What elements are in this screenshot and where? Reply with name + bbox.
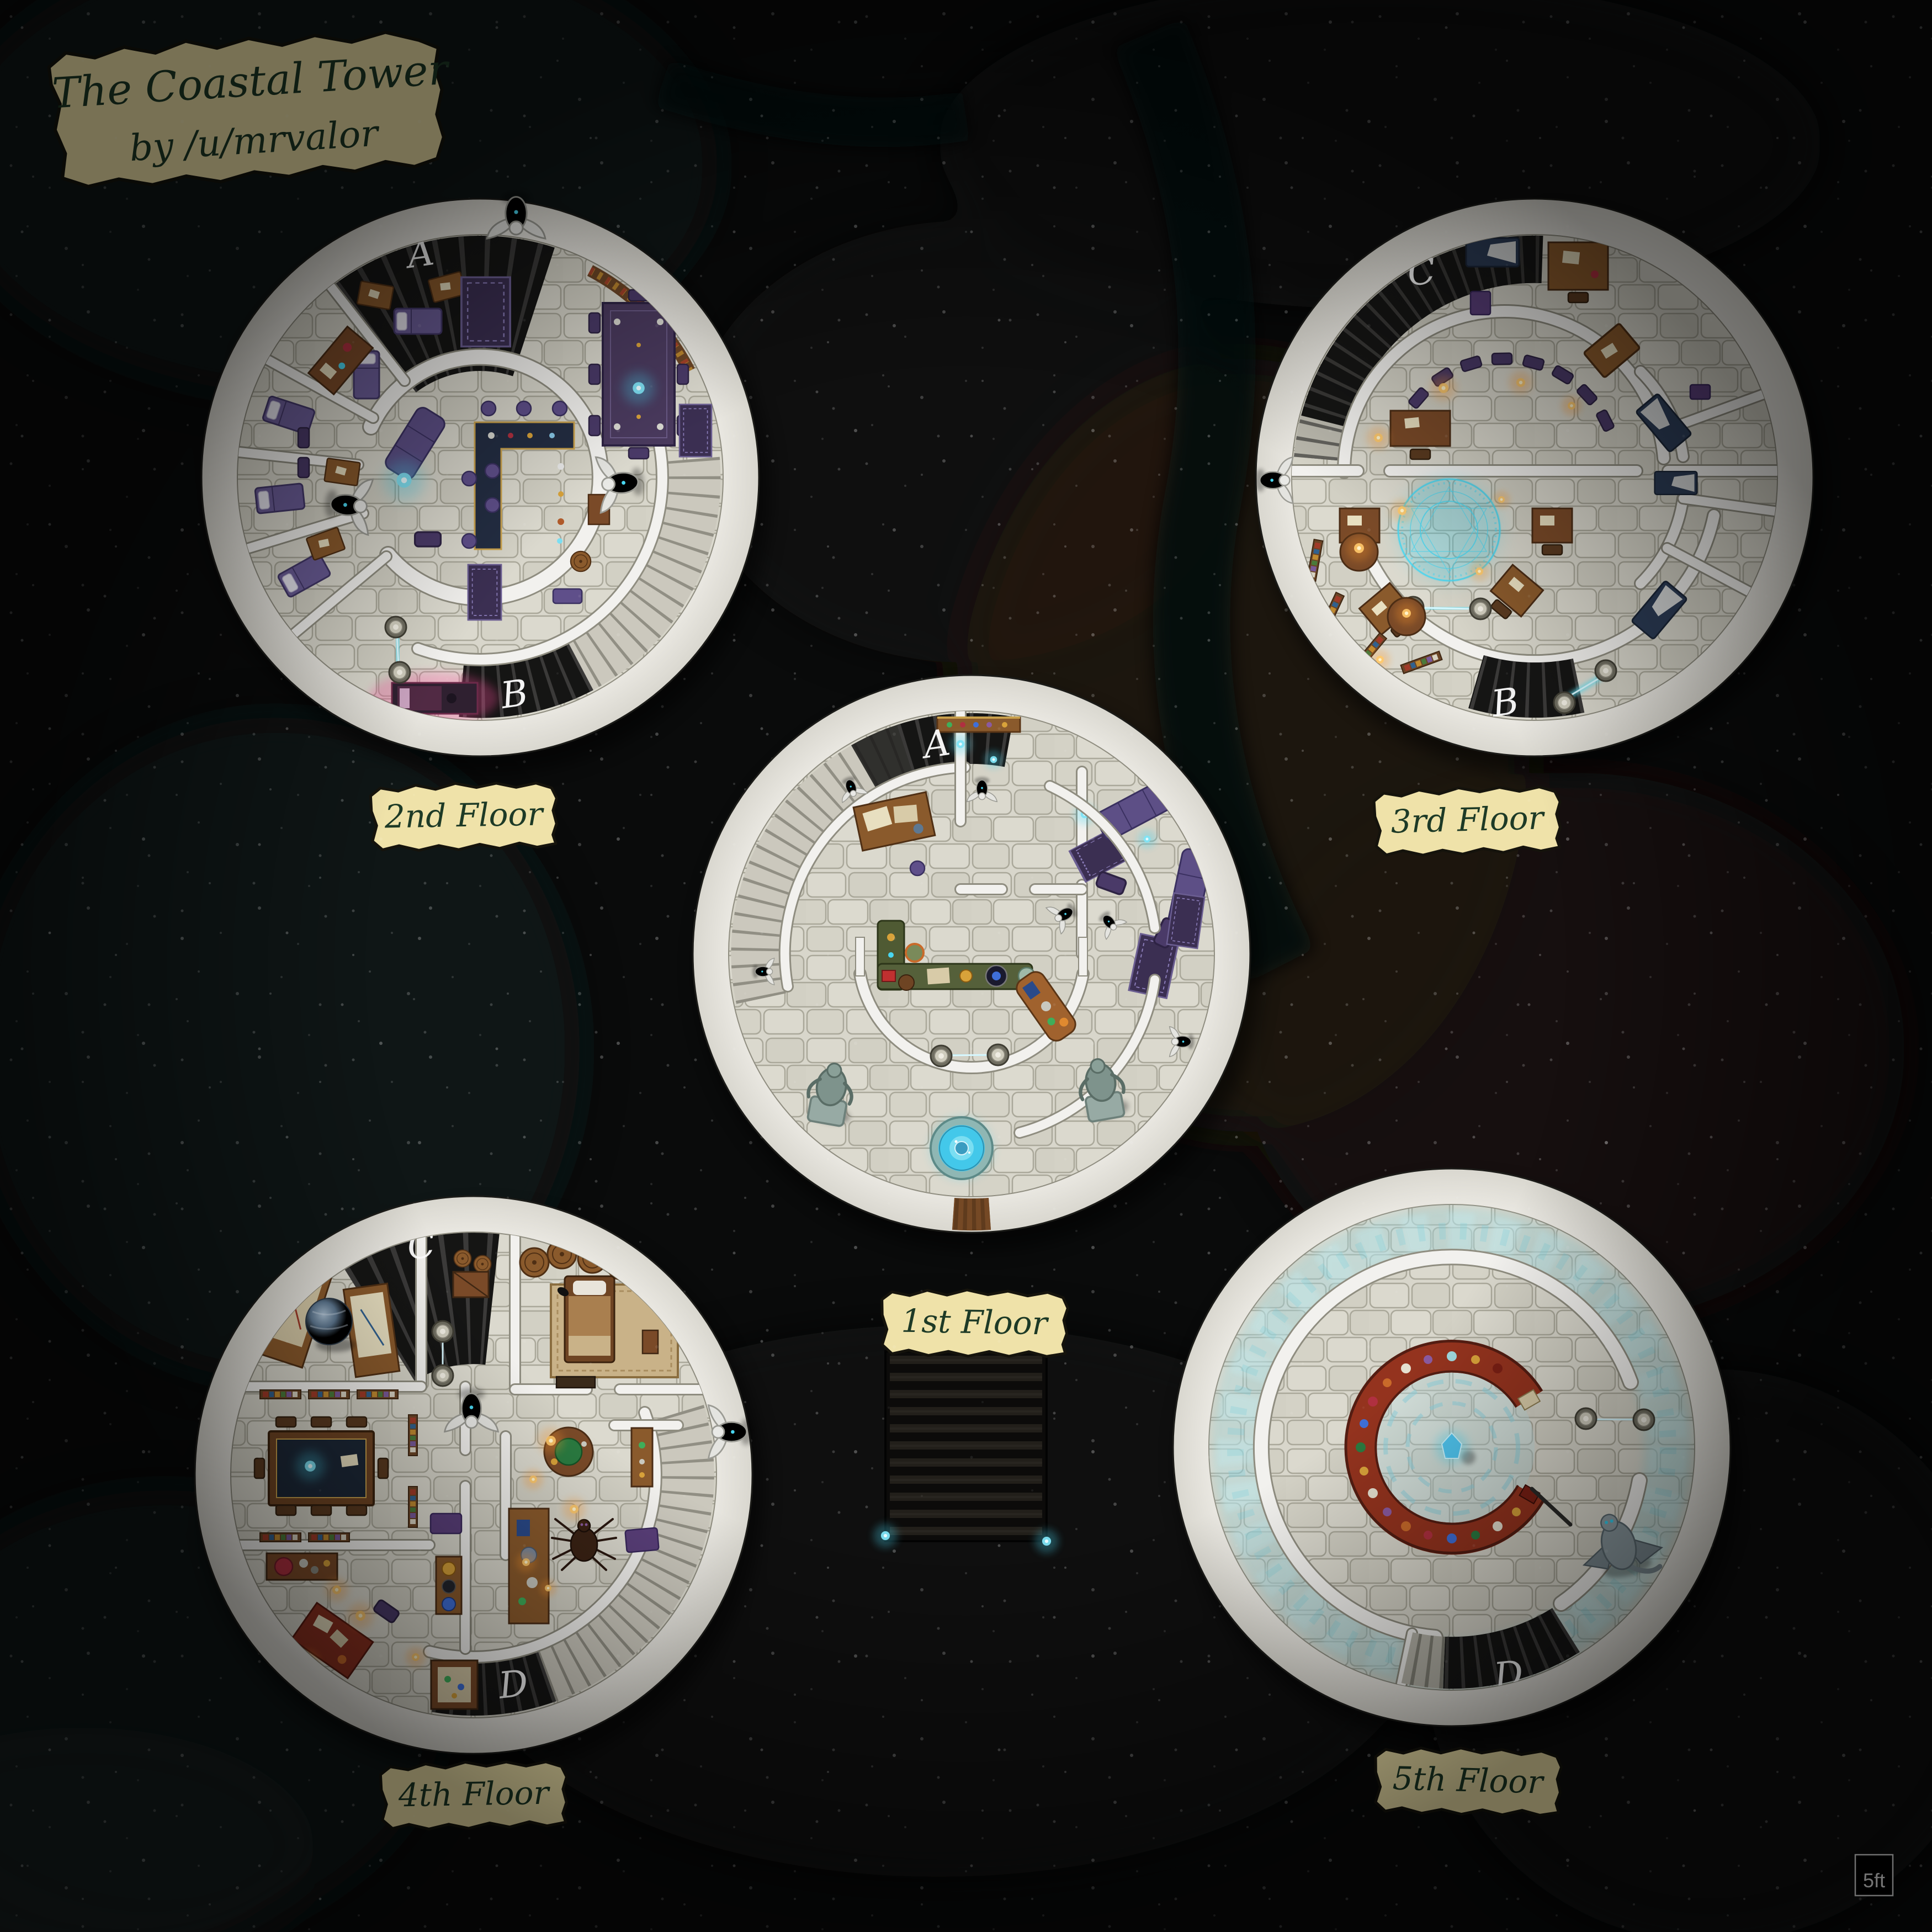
coastal-tower-map: A B bbox=[0, 0, 1932, 1932]
vignette bbox=[0, 0, 1932, 1932]
